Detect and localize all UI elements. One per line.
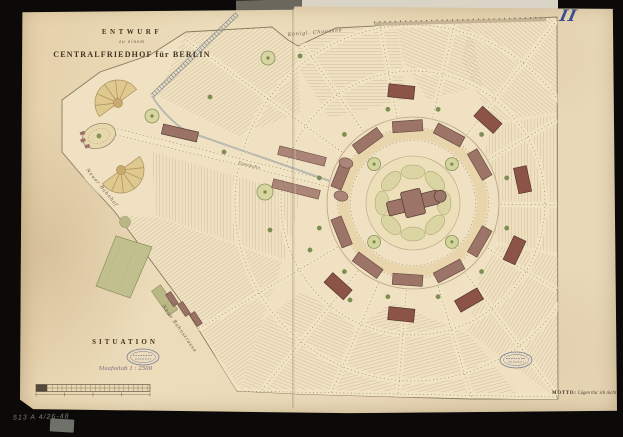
title-line-2: zu einem bbox=[50, 40, 214, 45]
paper-sheet: Königl. Chaussee Neuer Bahnhof Neue Bahn… bbox=[20, 4, 617, 414]
paper-fold-seam bbox=[292, 10, 296, 408]
motto-label: MOTTO: bbox=[552, 391, 577, 396]
ring-buildings bbox=[331, 120, 492, 287]
entrance-complex bbox=[77, 71, 199, 202]
central-clearing bbox=[327, 117, 499, 289]
main-west-avenue bbox=[112, 96, 347, 191]
archive-stamp-right bbox=[500, 352, 532, 368]
nursery-garden bbox=[96, 217, 178, 316]
archive-stamp-left bbox=[127, 349, 159, 365]
ornamental-garden-circles bbox=[145, 51, 275, 200]
photo-mount-background: 513 A 4/26-48 bbox=[0, 0, 623, 437]
north-boundary-wall bbox=[374, 18, 546, 25]
entrance-fan-upper bbox=[86, 71, 139, 120]
entrance-fan-lower bbox=[100, 153, 153, 202]
central-complex bbox=[272, 84, 532, 322]
archive-reference: 513 A 4/26-48 bbox=[13, 413, 70, 421]
scale-bar bbox=[36, 385, 150, 397]
title-line-1: ENTWURF bbox=[50, 28, 214, 36]
title-line-3: CENTRALFRIEDHOF für BERLIN bbox=[50, 50, 214, 59]
street-label-southwest: Neue Bahnstrasse bbox=[160, 303, 198, 354]
boundary-buildings bbox=[166, 292, 203, 327]
entrance-plaza bbox=[77, 119, 119, 154]
title-block: ENTWURF zu einem CENTRALFRIEDHOF für BER… bbox=[50, 28, 214, 59]
avenue-flanking-buildings bbox=[272, 146, 354, 203]
central-chapel bbox=[385, 182, 450, 222]
plate-number: II bbox=[558, 6, 579, 25]
trees bbox=[208, 54, 509, 302]
street-label-west: Neuer Bahnhof bbox=[84, 167, 119, 209]
station-building bbox=[161, 124, 198, 142]
ring-walk bbox=[344, 134, 482, 272]
railway-label: Eisenbahn bbox=[237, 160, 261, 170]
parterre-circles bbox=[368, 158, 459, 249]
situation-label: SITUATION bbox=[80, 338, 170, 346]
garden-beds bbox=[375, 165, 451, 241]
scale-note: Maafsstab 1 : 2500 bbox=[78, 366, 173, 372]
motto: MOTTO: Lügen thu' ich nicht bbox=[552, 391, 614, 397]
motto-text: Lügen thu' ich nicht bbox=[578, 391, 616, 396]
inner-garden-ring bbox=[366, 156, 460, 250]
outer-buildings bbox=[324, 84, 532, 322]
burial-fields bbox=[118, 17, 557, 398]
